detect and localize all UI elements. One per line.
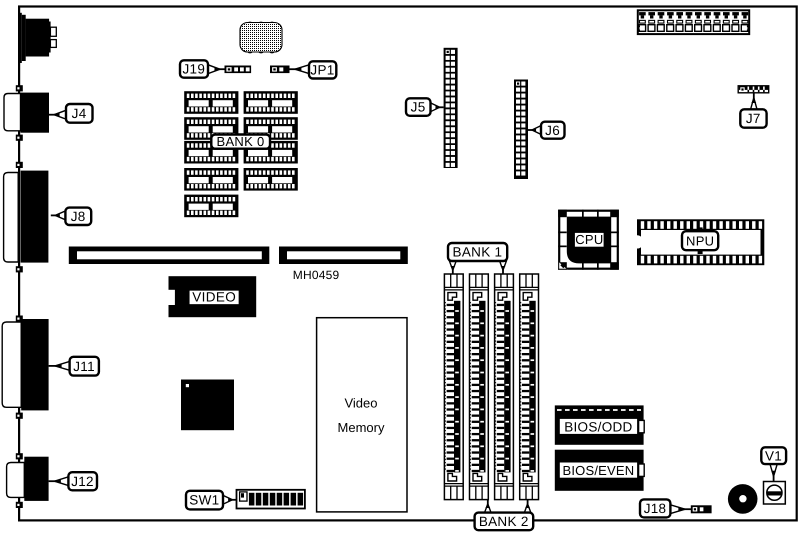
svg-text:BANK 1: BANK 1 (453, 245, 503, 260)
svg-text:MH0459: MH0459 (293, 268, 340, 282)
svg-text:BIOS/ODD: BIOS/ODD (564, 419, 632, 434)
svg-text:BIOS/EVEN: BIOS/EVEN (562, 463, 634, 478)
svg-text:J8: J8 (71, 209, 86, 224)
svg-text:J19: J19 (183, 62, 206, 77)
svg-text:BANK 0: BANK 0 (216, 134, 264, 149)
svg-text:Memory: Memory (338, 420, 385, 435)
svg-text:NPU: NPU (686, 233, 714, 248)
svg-text:JP1: JP1 (310, 63, 334, 78)
svg-text:J12: J12 (71, 474, 94, 489)
svg-text:J18: J18 (644, 501, 667, 516)
svg-text:J7: J7 (746, 111, 761, 126)
svg-text:J4: J4 (72, 106, 87, 121)
svg-text:Video: Video (344, 396, 377, 411)
svg-text:VIDEO: VIDEO (192, 290, 236, 305)
svg-text:SW1: SW1 (189, 493, 219, 508)
svg-text:J6: J6 (545, 123, 560, 138)
svg-text:V1: V1 (765, 448, 782, 463)
svg-text:CPU: CPU (575, 232, 603, 247)
svg-text:J5: J5 (411, 100, 426, 115)
svg-text:BANK 2: BANK 2 (479, 514, 529, 529)
svg-text:J11: J11 (73, 359, 95, 374)
